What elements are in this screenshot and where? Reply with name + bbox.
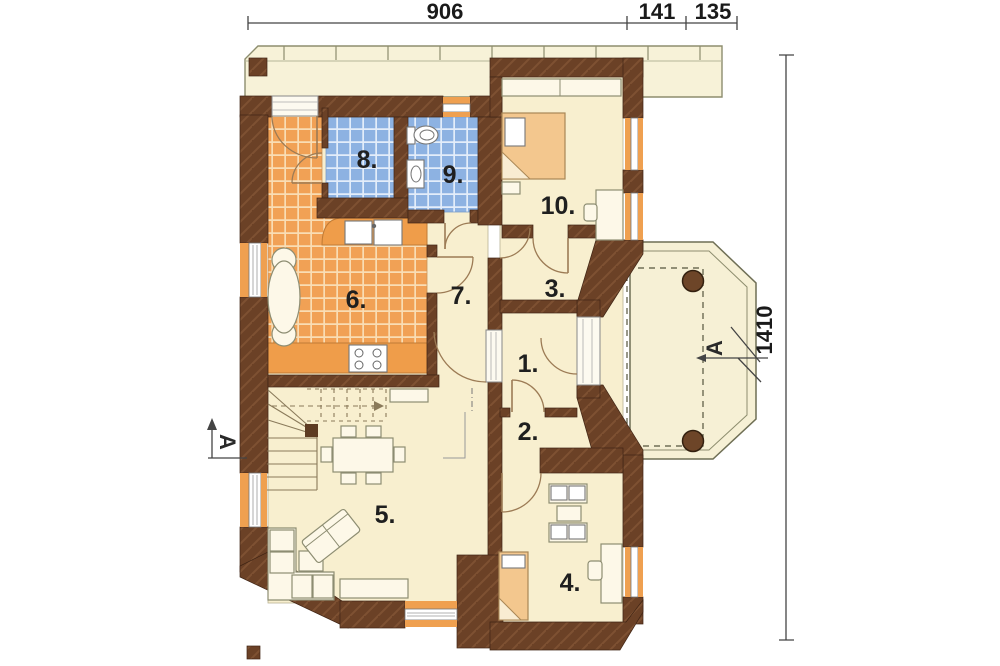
detached-post (247, 646, 260, 659)
sofa-cushion (313, 575, 333, 598)
terrace-door (577, 317, 600, 385)
wall (322, 108, 328, 148)
sofa-cushion (270, 530, 294, 551)
wardrobe (502, 79, 621, 96)
wall (268, 375, 439, 387)
desk-chair (588, 561, 602, 580)
wall (500, 300, 577, 313)
side-table (557, 506, 581, 521)
window-living-bottom (405, 601, 457, 627)
wall (240, 297, 268, 473)
wall (427, 245, 437, 257)
entrance-door (272, 96, 318, 116)
chair (341, 473, 356, 484)
dim-value-1410: 1410 (752, 306, 777, 355)
wall (577, 385, 600, 398)
terrace-column (683, 431, 704, 452)
room-label-9: 9. (443, 161, 464, 189)
wall (427, 293, 437, 375)
chair (366, 426, 381, 437)
chair (366, 473, 381, 484)
room-label-5: 5. (375, 501, 396, 529)
stove (349, 345, 387, 372)
wall (623, 170, 643, 193)
room-label-3: 3. (545, 275, 566, 303)
pillow (505, 118, 525, 146)
kitchen-counter-bottom (268, 343, 427, 373)
section-arrow-icon (207, 418, 217, 430)
sink-basin-right (374, 220, 402, 245)
wall (470, 210, 478, 223)
wall (317, 198, 408, 218)
room-label-6: 6. (346, 286, 367, 314)
window-bedroom10-b (625, 193, 643, 240)
seat (569, 525, 585, 539)
dining-table (333, 438, 393, 472)
sofa-cushion (270, 552, 294, 573)
pillow (502, 555, 525, 568)
wall (490, 77, 502, 117)
section-letter: A (215, 434, 240, 450)
wall (500, 408, 510, 417)
room-label-8: 8. (357, 146, 378, 174)
terrace-column (683, 271, 704, 292)
dim-value-135: 135 (695, 0, 732, 24)
room-label-1: 1. (518, 350, 539, 378)
dim-value-141: 141 (639, 0, 676, 24)
hall-door-frame (486, 330, 502, 382)
floor-plan-page: 1. 2. 3. 4. 5. 6. 7. 8. 9. 10. A A 906 1… (0, 0, 1000, 666)
kitchen-table (268, 261, 300, 333)
desk (601, 544, 622, 603)
sideboard (390, 389, 428, 402)
deck-outline (245, 46, 722, 97)
chair (341, 426, 356, 437)
wall (623, 455, 643, 547)
section-letter: A (702, 340, 727, 356)
room-label-10: 10. (541, 192, 576, 220)
bench (340, 579, 408, 598)
sofa-cushion (292, 575, 312, 598)
wall (540, 448, 623, 473)
wall (545, 408, 577, 417)
wall (240, 115, 268, 243)
wall (408, 210, 444, 223)
wall (322, 183, 328, 198)
window-kitchen (240, 243, 267, 297)
wall (394, 117, 408, 198)
desk (596, 190, 623, 240)
wall (623, 58, 643, 118)
seat (551, 486, 567, 500)
wall (490, 58, 643, 77)
window-living-left (240, 473, 267, 527)
wall (478, 117, 502, 225)
wall (577, 300, 600, 317)
wall (240, 96, 272, 117)
sink-basin-left (345, 221, 372, 244)
window-bedroom10-a (625, 118, 643, 170)
deck-post (249, 58, 267, 76)
seat (569, 486, 585, 500)
stair-newel-post (305, 424, 318, 437)
wall (488, 258, 502, 330)
wall (318, 96, 443, 117)
dimension-top: 906 141 135 (248, 0, 737, 30)
room-label-4: 4. (560, 569, 581, 597)
room-label-2: 2. (518, 418, 539, 446)
dimension-right: 1410 (752, 55, 794, 640)
wall (340, 601, 405, 628)
floor-plan-canvas: 1. 2. 3. 4. 5. 6. 7. 8. 9. 10. A A 906 1… (0, 0, 1000, 666)
seat (551, 525, 567, 539)
window-bedroom4 (625, 547, 643, 597)
chair (394, 447, 405, 462)
sink-faucet (372, 224, 376, 228)
dim-value-906: 906 (427, 0, 464, 24)
chair (321, 447, 332, 462)
desk-chair (584, 204, 597, 221)
room-label-7: 7. (451, 282, 472, 310)
nightstand (502, 182, 520, 194)
terrace-bay (627, 242, 756, 459)
window-wc-top (443, 97, 470, 117)
